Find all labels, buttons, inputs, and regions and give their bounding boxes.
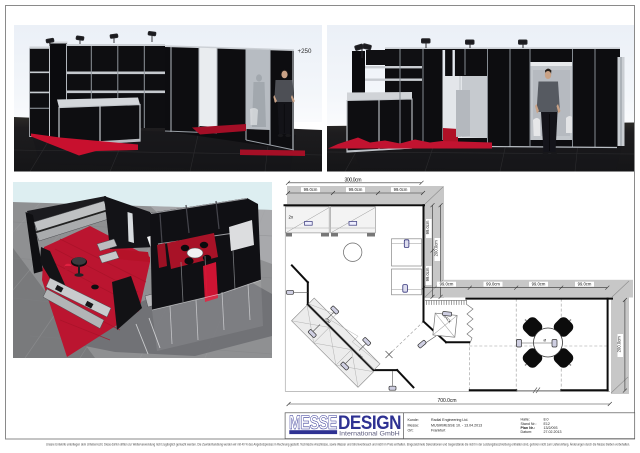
svg-text:Frankfurt: Frankfurt (431, 429, 445, 433)
svg-text:99.0cm: 99.0cm (349, 187, 363, 192)
svg-text:99.0cm: 99.0cm (394, 187, 408, 192)
svg-text:Unsere Entwürfe unterliegen de: Unsere Entwürfe unterliegen dem Urheberr… (46, 442, 630, 446)
svg-text:99.0cm: 99.0cm (532, 282, 546, 287)
svg-text:Datum:: Datum: (521, 430, 533, 434)
svg-text:99.0cm: 99.0cm (425, 220, 430, 234)
svg-text:99.0cm: 99.0cm (425, 267, 430, 281)
svg-text:700.0cm: 700.0cm (438, 398, 457, 404)
svg-text:Kunde:: Kunde: (408, 418, 419, 422)
svg-text:99.0cm: 99.0cm (440, 282, 454, 287)
svg-text:+250: +250 (298, 48, 312, 55)
svg-text:27.02.2013: 27.02.2013 (544, 430, 562, 434)
svg-text:99.0cm: 99.0cm (304, 187, 318, 192)
svg-text:International GmbH: International GmbH (339, 430, 400, 437)
svg-text:Ø: Ø (544, 339, 547, 343)
svg-text:200.0cm: 200.0cm (433, 240, 438, 257)
svg-text:Radial Engineering Ltd.: Radial Engineering Ltd. (431, 418, 468, 422)
svg-text:Ort:: Ort: (408, 429, 414, 433)
svg-text:300.0cm: 300.0cm (345, 177, 362, 183)
svg-text:99.0cm: 99.0cm (486, 282, 500, 287)
svg-text:Messe:: Messe: (408, 423, 420, 427)
svg-text:2x: 2x (289, 215, 294, 220)
svg-text:99.0cm: 99.0cm (578, 282, 592, 287)
svg-text:MUSIKMESSE 10. - 13.04.2013: MUSIKMESSE 10. - 13.04.2013 (431, 423, 482, 427)
svg-text:200.0cm: 200.0cm (616, 336, 621, 353)
